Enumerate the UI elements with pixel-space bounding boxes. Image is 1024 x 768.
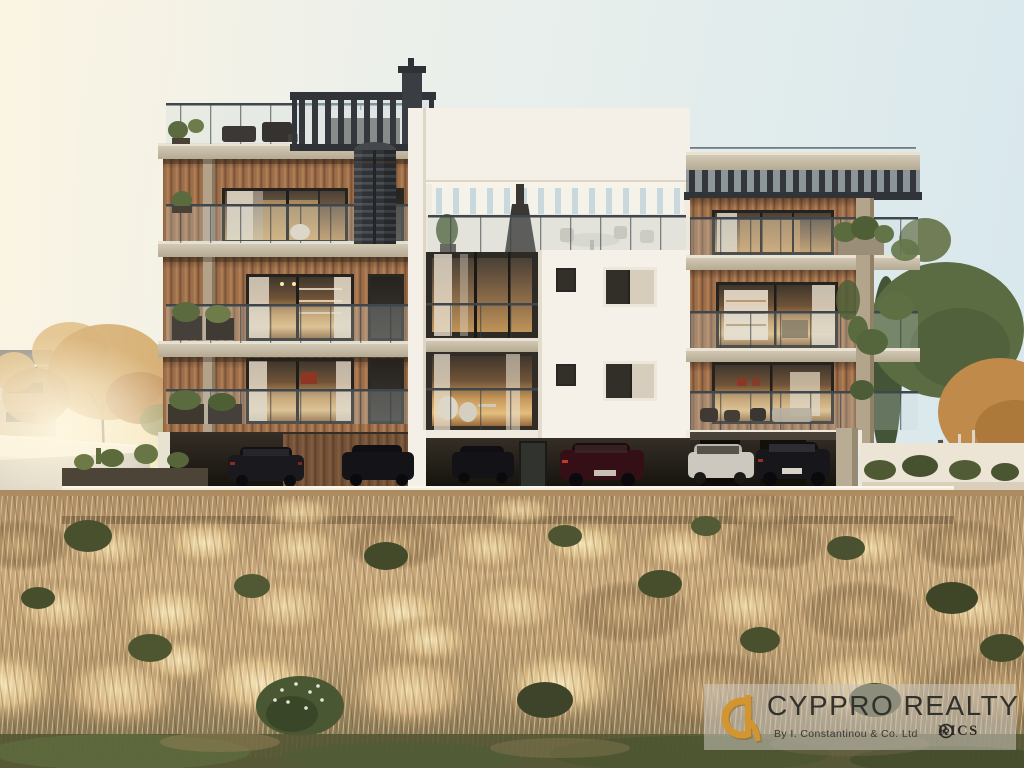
watermark-brand: CYPPRO REALTY — [767, 690, 1019, 722]
penthouse-parapet — [408, 108, 690, 184]
white-box — [538, 250, 690, 452]
center-tower — [408, 108, 690, 452]
roof-wire-rail — [690, 147, 916, 149]
entrance-door — [520, 442, 546, 488]
spiral-staircase — [354, 142, 396, 244]
watermark-byline: By I. Constantinou & Co. Ltd — [774, 728, 918, 740]
balcony-chair — [290, 224, 310, 240]
watermark-panel: CYPPRO REALTY By I. Constantinou & Co. L… — [704, 684, 1016, 750]
cyppro-monogram-icon — [712, 687, 764, 745]
rics-badge: RICS — [938, 723, 979, 740]
penthouse-terrace — [426, 182, 690, 252]
architectural-render-scene: CYPPRO REALTY By I. Constantinou & Co. L… — [0, 0, 1024, 768]
flowering-bush — [256, 676, 344, 736]
white-pergola — [430, 184, 686, 214]
left-wing — [158, 58, 436, 432]
rics-emblem-icon — [938, 723, 954, 739]
render-illustration — [0, 0, 1024, 768]
roof-lounge-furniture — [222, 126, 256, 142]
recessed-glass-floors — [408, 252, 545, 452]
dark-pergola-right — [684, 170, 922, 200]
